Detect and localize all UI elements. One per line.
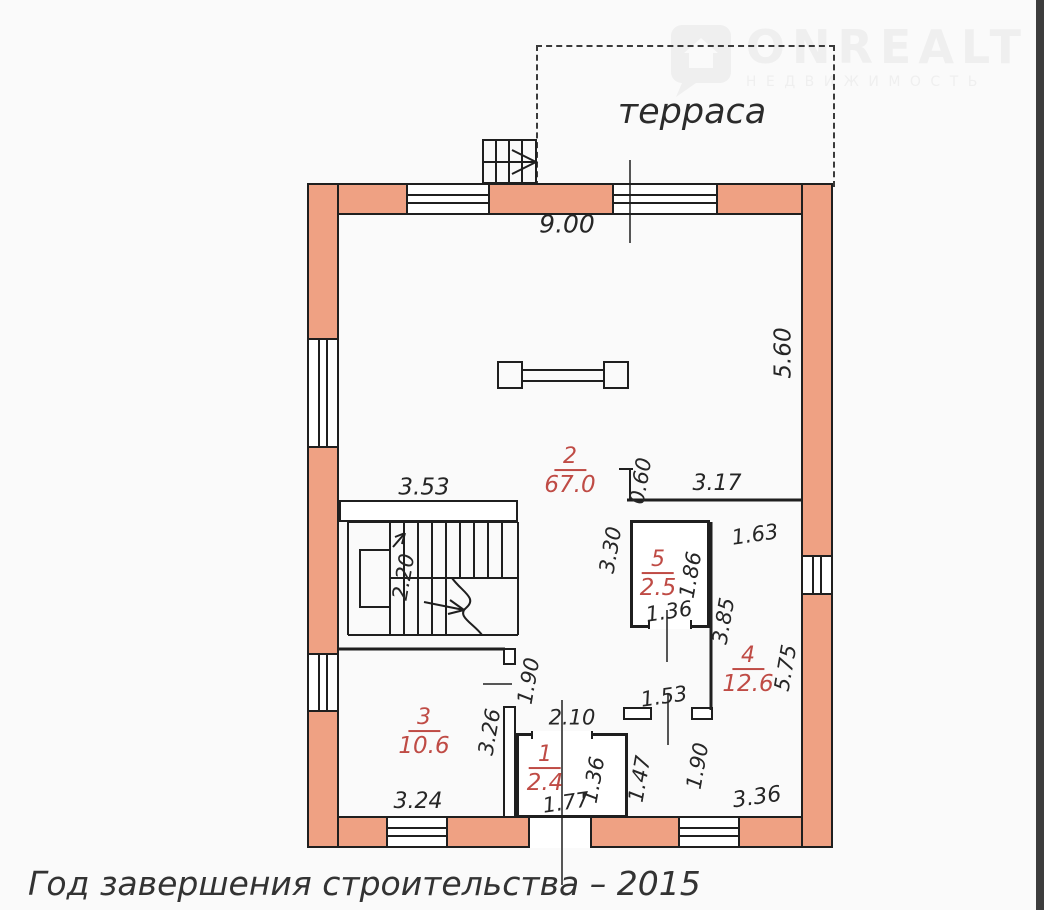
room-number: 5: [642, 547, 674, 574]
room-label: 12.4: [527, 742, 564, 798]
dimension-label: 3.24: [394, 791, 443, 813]
room-area: 67.0: [544, 471, 595, 500]
exterior-steps: [483, 140, 536, 183]
room-number: 4: [732, 643, 764, 670]
room-number: 2: [554, 444, 586, 471]
room-label: 52.5: [640, 547, 677, 603]
plan-linework: [0, 0, 1044, 910]
room-number: 3: [408, 705, 440, 732]
dimension-label: 5.60: [773, 327, 796, 378]
room-label: 267.0: [544, 444, 595, 500]
room-area: 2.5: [640, 574, 677, 603]
ceiling-beam: [498, 362, 628, 388]
room-area: 10.6: [398, 732, 449, 761]
dimension-label: 3.53: [398, 477, 449, 500]
room-label: 412.6: [722, 643, 773, 699]
caption-year-built: Год завершения строительства – 2015: [28, 864, 701, 903]
dimension-label: 2.10: [549, 708, 596, 729]
dimension-label: 9.00: [539, 212, 595, 237]
room-label: 310.6: [398, 705, 449, 761]
staircase: [348, 522, 518, 635]
room-number: 1: [529, 742, 561, 769]
room-area: 12.6: [722, 670, 773, 699]
dimension-label: 3.17: [693, 473, 742, 495]
room-area: 2.4: [527, 769, 564, 798]
floor-plan-page: ONREALT НЕДВИЖИМОСТЬ терраса: [0, 0, 1044, 910]
right-edge-strip: [1036, 0, 1044, 910]
